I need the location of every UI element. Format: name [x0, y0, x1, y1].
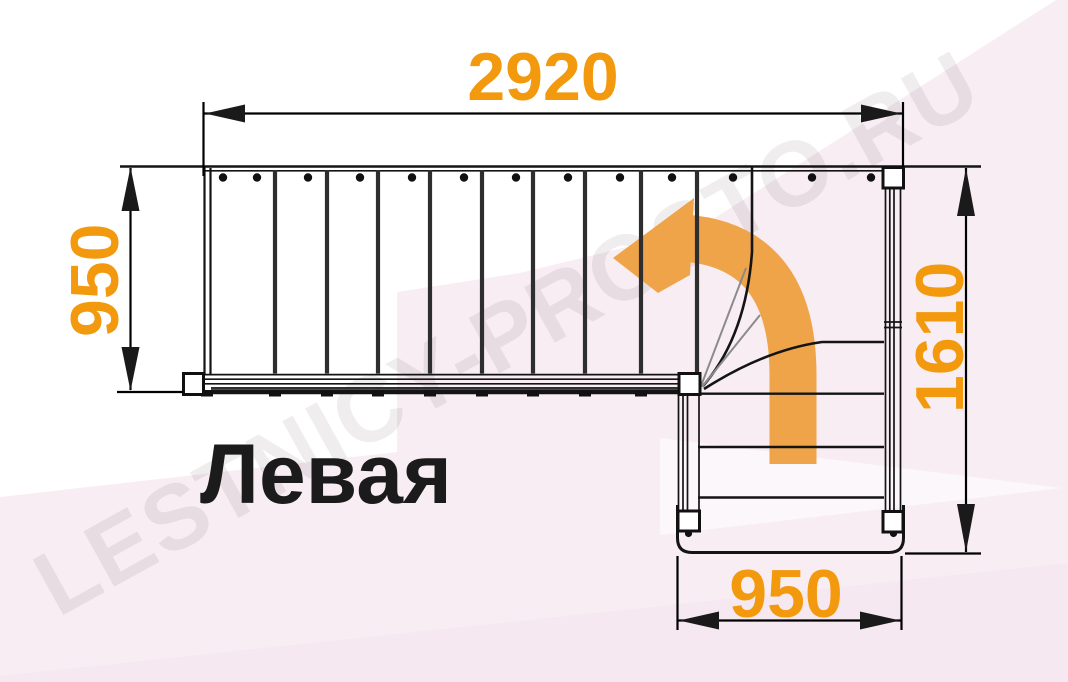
dimension-bottom-label: 950: [729, 556, 842, 632]
staircase-plan-drawing: LESTNICY-PROSTO.RU: [0, 0, 1068, 682]
post-top-right: [883, 168, 904, 189]
staircase-plan-page: LESTNICY-PROSTO.RU: [0, 0, 1068, 682]
post-bottom-left: [678, 511, 700, 531]
dimension-right-label: 1610: [902, 262, 978, 413]
post-top-flight-left: [184, 374, 204, 395]
dimension-top-label: 2920: [467, 39, 618, 115]
dimension-left-label: 950: [57, 224, 133, 337]
top-flight-left-edge: [205, 167, 211, 375]
post-central: [679, 374, 700, 395]
caption-left-variant: Левая: [200, 427, 452, 521]
post-bottom-right: [883, 512, 903, 533]
